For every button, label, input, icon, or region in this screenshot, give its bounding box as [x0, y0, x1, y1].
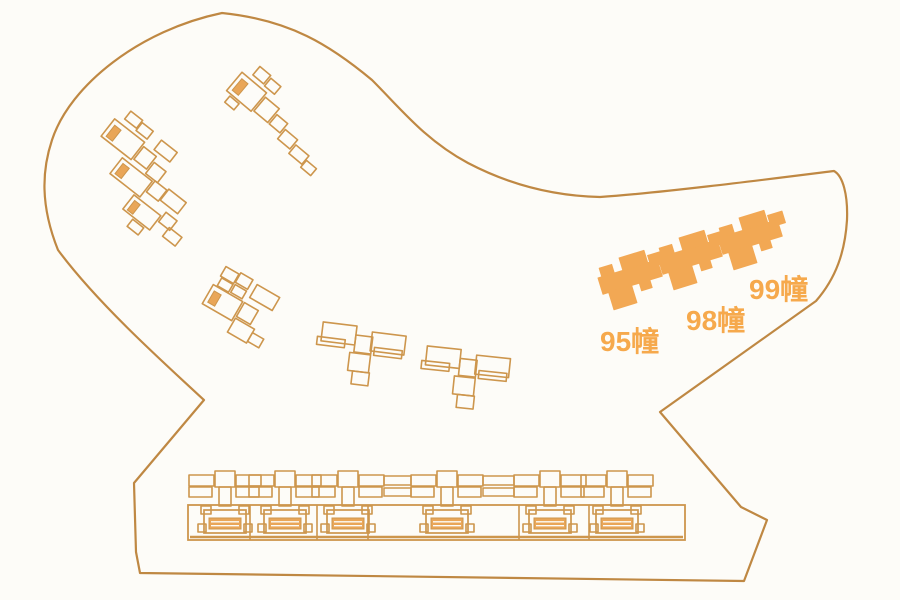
bottom-module-5 — [514, 471, 586, 533]
building-label-98[interactable]: 98幢 — [686, 304, 745, 336]
site-plan: 95幢98幢99幢 — [0, 0, 900, 600]
bottom-module-4 — [411, 471, 483, 533]
house-hatch — [269, 518, 301, 529]
house-hatch — [601, 518, 633, 529]
bottom-module-3 — [312, 471, 384, 533]
building-cluster-e — [417, 346, 511, 413]
house-hatch — [209, 518, 241, 529]
bottom-module-6 — [581, 471, 653, 533]
balcony-bridge — [483, 488, 514, 496]
building-cluster-d — [312, 321, 406, 389]
balcony-bridge — [483, 476, 514, 485]
bottom-row — [188, 471, 685, 540]
building-99[interactable] — [714, 205, 794, 271]
site-boundary — [44, 13, 847, 581]
building-cluster-c — [196, 264, 286, 350]
house-hatch — [431, 518, 463, 529]
balcony-bridge — [384, 476, 411, 485]
site-plan-canvas: 95幢98幢99幢 — [0, 0, 900, 600]
house-hatch — [332, 518, 364, 529]
building-cluster-a — [220, 60, 344, 176]
balcony-bridge — [384, 488, 411, 496]
building-label-95[interactable]: 95幢 — [600, 325, 659, 357]
bottom-module-1 — [189, 471, 261, 533]
bottom-module-2 — [249, 471, 321, 533]
building-label-99[interactable]: 99幢 — [749, 273, 808, 305]
house-hatch — [534, 518, 566, 529]
building-cluster-b — [67, 106, 224, 257]
